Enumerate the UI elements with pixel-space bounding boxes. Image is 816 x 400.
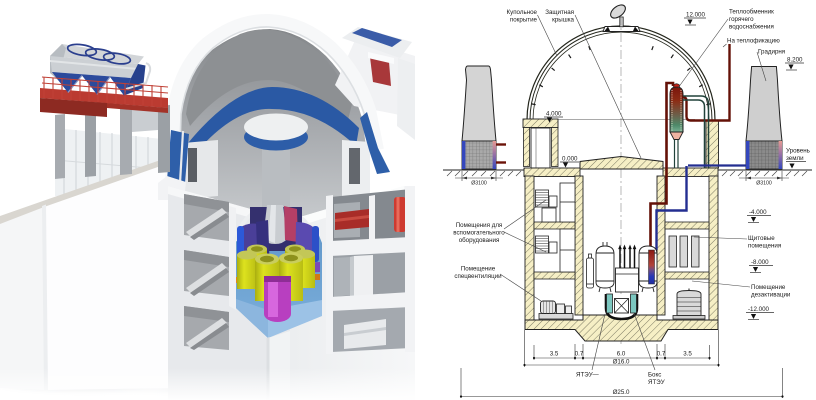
svg-text:спецвентиляции: спецвентиляции <box>454 273 502 280</box>
svg-text:вспомогательного: вспомогательного <box>453 230 505 237</box>
svg-text:Помещения для: Помещения для <box>456 222 503 229</box>
svg-text:8.200: 8.200 <box>787 57 803 64</box>
svg-text:помещения: помещения <box>748 243 781 250</box>
svg-text:-4.000: -4.000 <box>749 209 767 216</box>
svg-text:Помещение: Помещение <box>751 284 786 291</box>
svg-text:Теплообменник: Теплообменник <box>729 9 774 16</box>
svg-text:-8.000: -8.000 <box>751 259 769 266</box>
svg-text:горячего: горячего <box>729 16 754 23</box>
svg-text:0.000: 0.000 <box>562 156 578 163</box>
svg-text:0.7: 0.7 <box>575 351 584 358</box>
svg-text:Бокс: Бокс <box>648 372 661 379</box>
svg-text:крышка: крышка <box>552 17 574 24</box>
svg-text:Ø3100: Ø3100 <box>471 181 487 187</box>
svg-text:земли: земли <box>786 155 804 162</box>
svg-text:0.7: 0.7 <box>657 351 666 358</box>
svg-text:Купольное: Купольное <box>507 9 538 16</box>
svg-text:водоснабжения: водоснабжения <box>729 24 774 31</box>
svg-text:-12.000: -12.000 <box>748 306 770 313</box>
svg-text:3.5: 3.5 <box>683 351 692 358</box>
svg-text:Уровень: Уровень <box>786 148 810 155</box>
svg-text:дезактивации: дезактивации <box>751 292 791 299</box>
svg-text:3.5: 3.5 <box>550 351 559 358</box>
svg-text:ЯТЭУ—: ЯТЭУ— <box>576 372 600 379</box>
svg-text:12.000: 12.000 <box>686 12 705 19</box>
svg-text:Ø25.0: Ø25.0 <box>613 389 630 396</box>
svg-text:ЯТЭУ: ЯТЭУ <box>648 379 665 386</box>
svg-text:Защитная: Защитная <box>545 9 574 16</box>
svg-text:На теплофикацию: На теплофикацию <box>727 38 780 45</box>
svg-text:Градирня: Градирня <box>758 49 785 56</box>
svg-text:покрытие: покрытие <box>510 17 538 24</box>
svg-text:Щитовые: Щитовые <box>748 235 775 242</box>
svg-text:Ø3100: Ø3100 <box>756 181 772 187</box>
svg-text:Помещение: Помещение <box>461 266 496 273</box>
svg-text:оборудования: оборудования <box>459 237 500 244</box>
svg-text:6.0: 6.0 <box>617 351 626 358</box>
svg-text:Ø16.0: Ø16.0 <box>613 359 630 366</box>
svg-text:4.000: 4.000 <box>546 111 562 118</box>
